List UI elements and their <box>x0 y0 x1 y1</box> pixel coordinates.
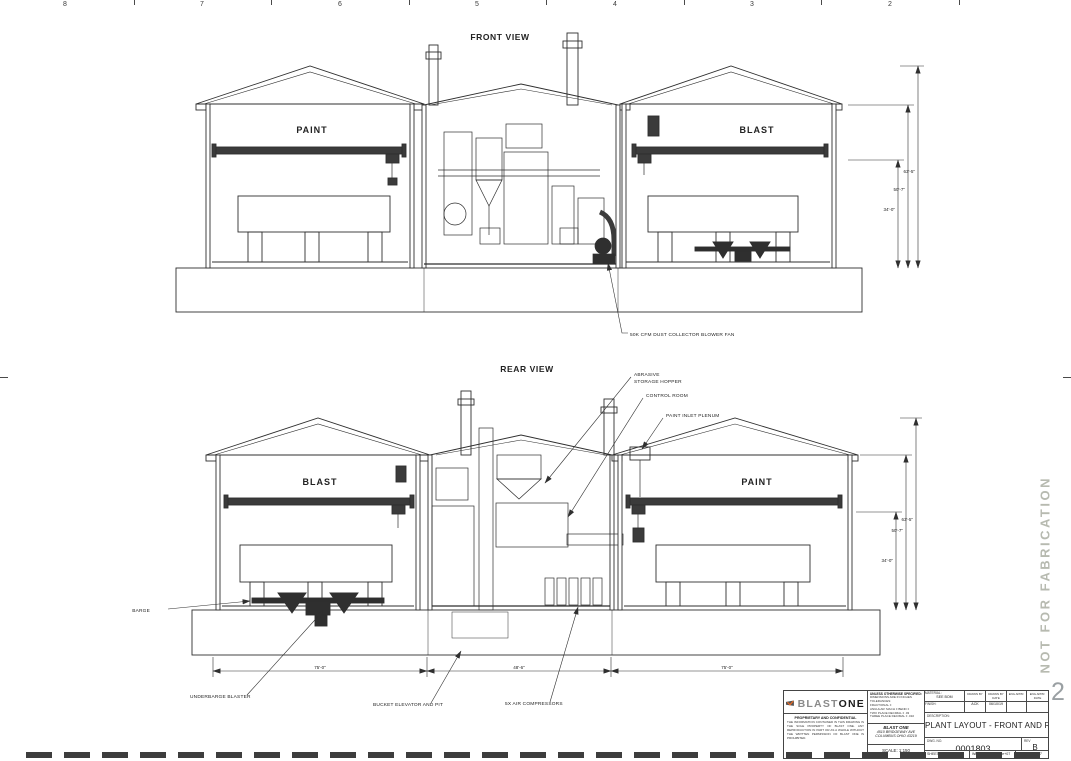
rev-cell: REV B <box>1022 738 1048 751</box>
exhaust-stack <box>426 45 441 105</box>
dwg-no-cell: DWG. NO. 0001803 <box>925 738 1022 751</box>
callout-paint-inlet-plenum: PAINT INLET PLENUM <box>666 413 719 419</box>
dwg-no-value: 0001803 <box>925 744 1021 751</box>
callout-dust-collector-fan: 50K CFM DUST COLLECTOR BLOWER FAN <box>630 332 735 338</box>
callout-abrasive-hopper: STORAGE HOPPER <box>634 379 682 385</box>
rear-blast-building: BLAST <box>206 418 430 626</box>
dim-label: 50'-7" <box>894 187 906 192</box>
drawn-by-label: DRAWN BY <box>965 691 985 696</box>
bucket-elevator <box>479 428 493 610</box>
blastone-logo-icon <box>786 695 795 712</box>
rear-paint-building: PAINT <box>612 418 858 610</box>
logo-text-blast: BLAST <box>798 698 839 710</box>
exhaust-stack <box>601 399 617 455</box>
eng-appr-date-header-cell: ENG APPR. DATE <box>1027 691 1048 702</box>
barge <box>252 593 384 626</box>
callout-control-room: CONTROL ROOM <box>646 393 688 399</box>
rear-width-dimensions: 75'-0" 48'-6" 75'-0" <box>213 657 843 677</box>
paint-inlet-plenum <box>630 447 650 497</box>
description-value: PLANT LAYOUT - FRONT AND REAR <box>925 721 1048 730</box>
callout-bucket-elevator: BUCKET ELEVATOR AND PIT <box>373 702 443 708</box>
callout-air-compressors: 5X AIR COMPRESSORS <box>505 701 563 707</box>
drawn-date-label: DRAWN BY DATE <box>986 691 1006 700</box>
spec-line: THREE PLACE DECIMAL ± .010 <box>868 715 924 719</box>
dim-label: 63'-5" <box>904 169 916 174</box>
crane-beam <box>224 495 414 528</box>
front-fan-callout: 50K CFM DUST COLLECTOR BLOWER FAN <box>608 263 735 338</box>
underbarge-blaster <box>315 615 327 626</box>
dim-label: 34'-0" <box>884 207 896 212</box>
finish-cell: FINISH: <box>925 702 965 713</box>
title-block: BLASTONE PROPRIETARY AND CONFIDENTIAL TH… <box>783 690 1049 759</box>
corner-zone-label: 2 <box>1051 678 1065 707</box>
eng-appr-date-value-cell <box>1027 702 1048 713</box>
front-height-dimensions: 34'-0" 50'-7" 63'-5" <box>848 66 924 268</box>
drawn-by-value: ACK <box>965 702 985 706</box>
company-address: COLUMBUS OHIO 43219 <box>868 734 924 738</box>
logo-text-one: ONE <box>839 698 865 710</box>
monorail-hoist <box>648 116 659 136</box>
description-cell: DESCRIPTION: PLANT LAYOUT - FRONT AND RE… <box>925 713 1048 738</box>
dim-label: 63'-5" <box>902 517 914 522</box>
drawn-by-header-cell: DRAWN BY <box>965 691 986 702</box>
building-label-blast: BLAST <box>303 477 338 487</box>
crane-beam <box>626 495 842 542</box>
material-cell: MATERIAL: SEE BOM <box>925 691 965 702</box>
dim-label: 50'-7" <box>892 528 904 533</box>
monorail-hoist <box>396 466 406 482</box>
paint-supply-duct <box>567 534 623 545</box>
rev-value: B <box>1022 743 1048 751</box>
crane-beam <box>212 144 406 185</box>
eng-appr-date-label: ENG APPR. DATE <box>1027 691 1048 700</box>
dim-label: 75'-0" <box>314 665 326 670</box>
rear-view: REAR VIEW <box>132 364 922 708</box>
crane-beam <box>632 144 828 175</box>
plant-layout-drawing: FRONT VIEW <box>0 0 1071 761</box>
rear-view-title: REAR VIEW <box>500 364 554 374</box>
eng-appr-header-cell: ENG APPR. <box>1007 691 1027 702</box>
dim-label: 48'-6" <box>513 665 525 670</box>
material-value: SEE BOM <box>925 695 964 699</box>
drawn-date-header-cell: DRAWN BY DATE <box>986 691 1007 702</box>
building-label-paint: PAINT <box>296 125 327 135</box>
air-compressors <box>545 578 602 605</box>
equipment-cabinet <box>436 468 468 500</box>
hoist-trolley <box>638 154 651 163</box>
dust-collector-equipment <box>438 124 615 264</box>
exhaust-stack <box>563 33 582 105</box>
hoist-trolley <box>392 505 405 514</box>
callout-barge: BARGE <box>132 608 150 614</box>
zone-ruler-bottom <box>26 752 1044 758</box>
drawn-date-value-cell: 06/10/19 <box>986 702 1007 713</box>
bucket-elevator-pit <box>452 612 508 638</box>
eng-appr-label: ENG APPR. <box>1007 691 1026 696</box>
building-label-blast: BLAST <box>740 125 775 135</box>
front-blast-building: BLAST <box>620 66 842 268</box>
front-paint-building: PAINT <box>196 66 424 268</box>
hoist-trolley <box>386 154 399 163</box>
tolerances-cell: UNLESS OTHERWISE SPECIFIED: DIMENSIONS A… <box>868 691 925 724</box>
front-view-title: FRONT VIEW <box>470 32 530 42</box>
drawn-by-value-cell: ACK <box>965 702 986 713</box>
abrasive-storage-hopper <box>497 455 541 499</box>
dim-label: 75'-0" <box>721 665 733 670</box>
rear-center-bay <box>428 391 623 610</box>
control-room <box>496 503 568 547</box>
company-cell: BLAST ONE 4510 BRIDGEWAY AVE COLUMBUS OH… <box>868 724 925 745</box>
workpiece <box>656 545 810 606</box>
drawn-date-value: 06/10/19 <box>986 702 1006 706</box>
front-foundation <box>176 268 862 312</box>
dim-label: 34'-0" <box>882 558 894 563</box>
description-label: DESCRIPTION: <box>925 713 1048 718</box>
rear-foundation <box>192 610 880 655</box>
hoist-trolley <box>632 505 645 514</box>
finish-label: FINISH: <box>925 702 964 706</box>
front-center-bay <box>422 33 620 268</box>
logo-cell: BLASTONE <box>784 691 868 714</box>
workpiece <box>240 545 392 606</box>
proprietary-body: THE INFORMATION CONTAINED IN THIS DRAWIN… <box>784 721 867 740</box>
callout-underbarge-blaster: UNDERBARGE BLASTER <box>190 694 251 700</box>
not-for-fabrication-stamp: NOT FOR FABRICATION <box>1038 494 1057 674</box>
eng-appr-value-cell <box>1007 702 1027 713</box>
callout-abrasive-hopper: ABRASIVE <box>634 372 660 378</box>
rear-height-dimensions: 34'-0" 50'-7" 63'-5" <box>856 418 922 610</box>
front-view: FRONT VIEW <box>176 32 924 338</box>
drawing-sheet: 8 7 6 5 4 3 2 FRONT VIEW <box>0 0 1071 761</box>
building-label-paint: PAINT <box>741 477 772 487</box>
equipment-cabinet <box>432 506 474 606</box>
dwg-no-label: DWG. NO. <box>925 738 1021 743</box>
workpiece <box>238 196 390 262</box>
